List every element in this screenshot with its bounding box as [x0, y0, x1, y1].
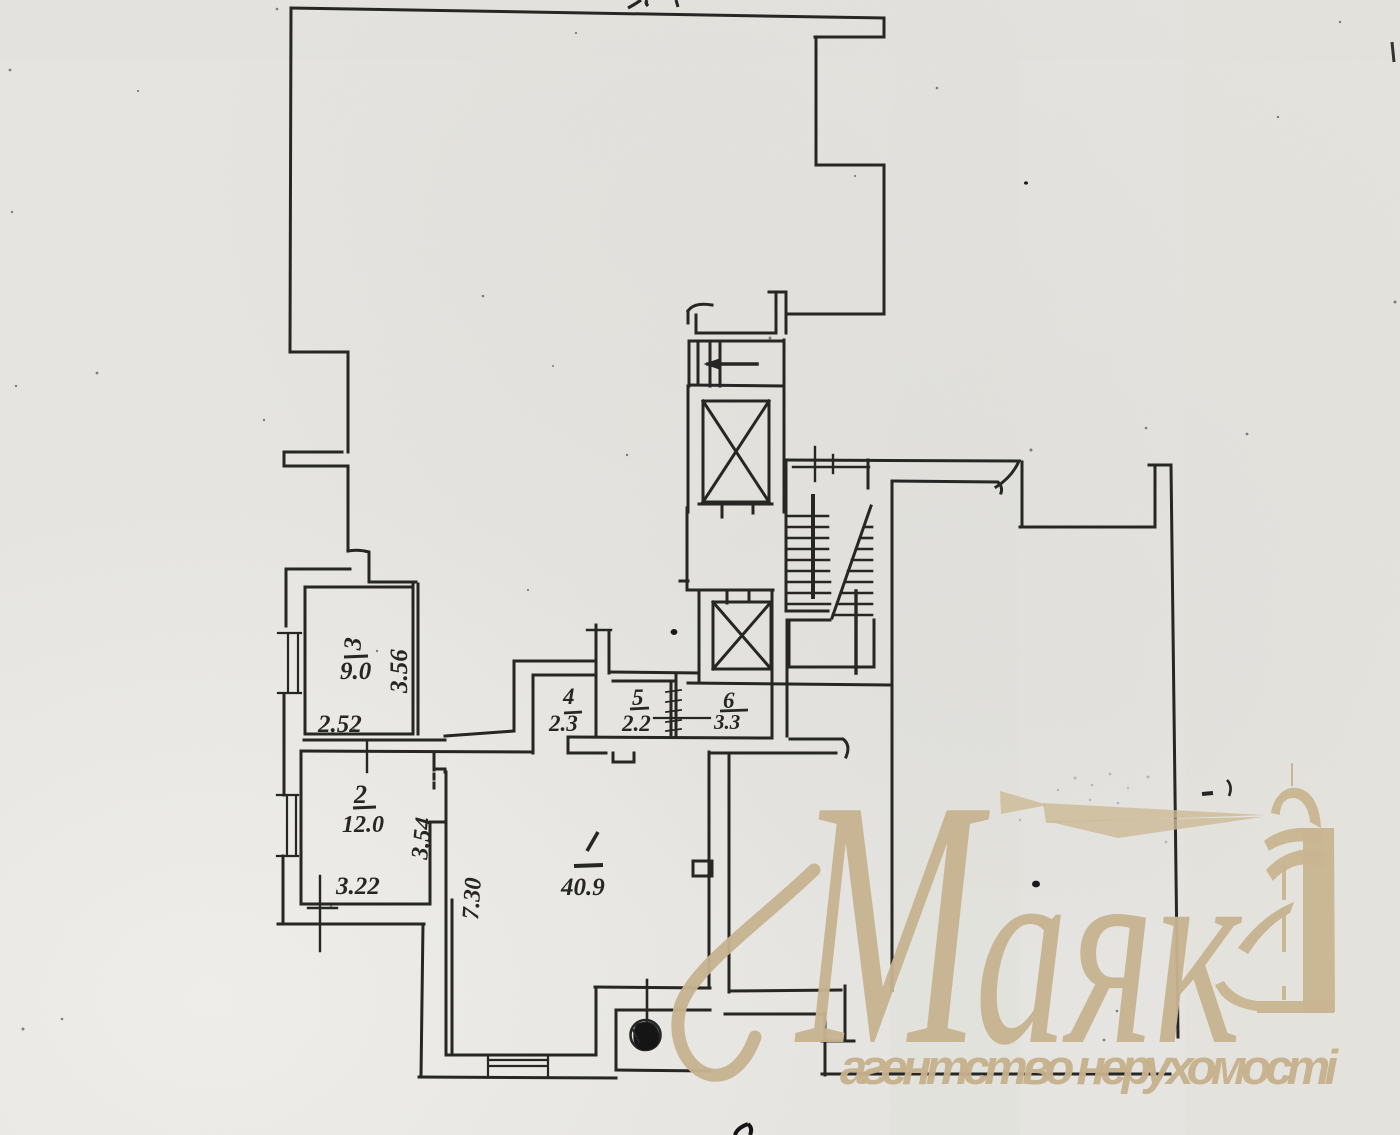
svg-text:3.54: 3.54: [407, 816, 437, 861]
svg-text:40.9: 40.9: [560, 874, 605, 901]
svg-text:3.22: 3.22: [335, 873, 380, 900]
svg-text:2: 2: [353, 780, 367, 809]
svg-text:2.3: 2.3: [548, 711, 578, 736]
svg-text:2.2: 2.2: [621, 711, 651, 736]
svg-text:7.30: 7.30: [458, 877, 487, 921]
svg-text:4: 4: [562, 684, 575, 709]
svg-text:12.0: 12.0: [342, 812, 384, 838]
svg-text:агентство нерухомості: агентство нерухомості: [840, 1041, 1339, 1095]
svg-text:5: 5: [632, 685, 644, 710]
svg-text:3.3: 3.3: [713, 710, 740, 734]
svg-text:3: 3: [339, 637, 367, 652]
svg-text:3.56: 3.56: [386, 649, 413, 694]
svg-text:9.0: 9.0: [340, 658, 372, 685]
svg-text:2.52: 2.52: [317, 711, 362, 738]
